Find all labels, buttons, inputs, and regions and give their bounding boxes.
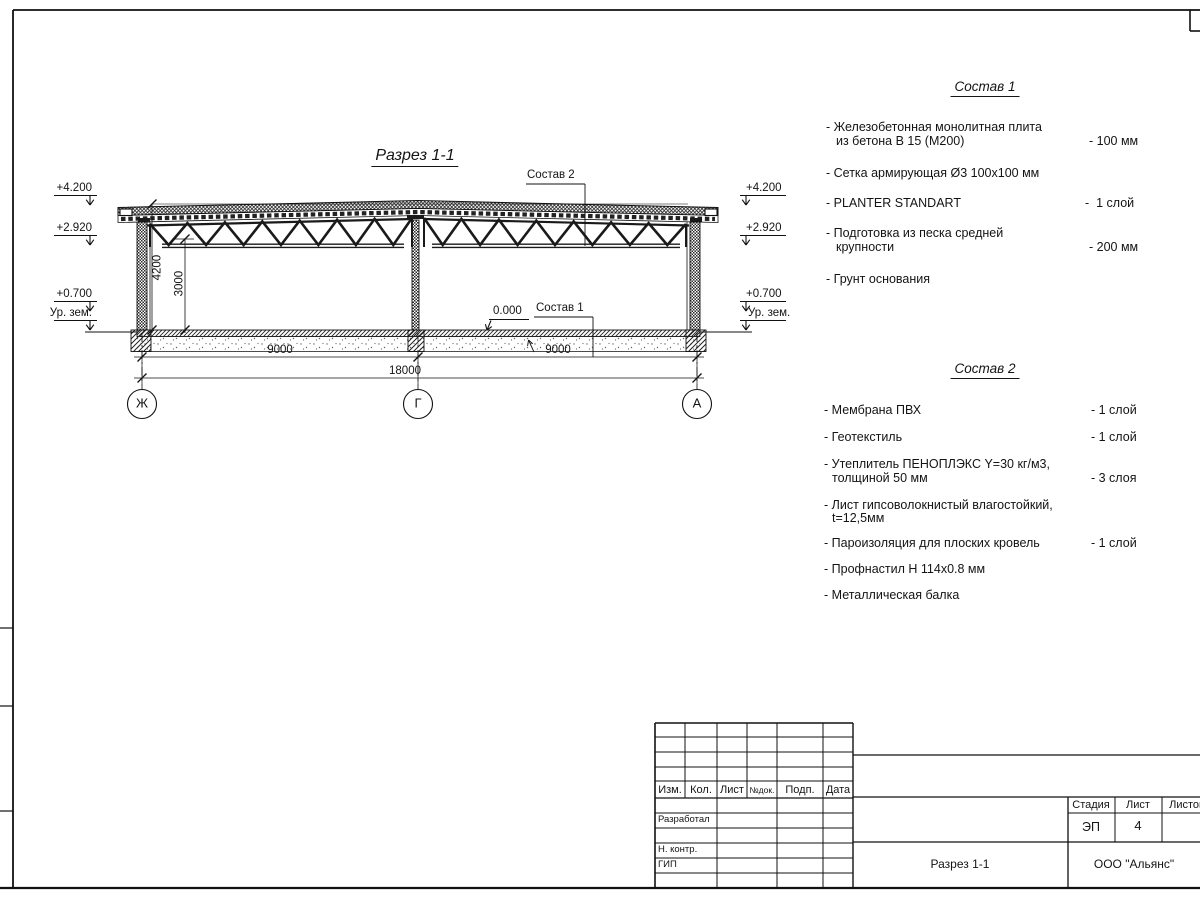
elevation-label: +2.920	[50, 222, 92, 235]
axis-letter: А	[693, 397, 702, 412]
floor-slab	[85, 330, 752, 352]
sostav2-title: Состав 2	[951, 361, 1020, 379]
list-item-value: - 1 слой	[1091, 536, 1137, 550]
list-item-value: - 1 слой	[1085, 196, 1134, 210]
zero-level-mark-icon	[485, 320, 529, 331]
walls-columns	[137, 220, 700, 330]
stage-label: Стадия	[1072, 799, 1110, 812]
sostav1-title: Состав 1	[951, 79, 1020, 97]
elevation-label: +0.700	[746, 288, 782, 301]
list-item: - Геотекстиль	[824, 430, 902, 444]
list-item-value: - 3 слоя	[1091, 471, 1136, 485]
axis-letter: Ж	[136, 397, 148, 412]
titleblock-col-podp: Подп.	[785, 784, 814, 797]
level-mark-icon	[54, 236, 97, 246]
sheet-label: Лист	[1126, 799, 1150, 812]
axis-letter: Г	[414, 397, 421, 412]
dimension-label: 9000	[545, 344, 571, 357]
zero-level-label: 0.000	[493, 305, 522, 318]
level-mark-icon	[54, 196, 97, 206]
titleblock-row-ncontr: Н. контр.	[658, 845, 697, 856]
list-item-value: - 1 слой	[1091, 403, 1137, 417]
titleblock-col-kol: Кол.	[690, 784, 712, 797]
titleblock-col-izm: Изм.	[658, 784, 682, 797]
list-item: - Грунт основания	[826, 272, 930, 286]
list-item: - Сетка армирующая Ø3 100х100 мм	[826, 166, 1039, 180]
list-item: - Пароизоляция для плоских кровель	[824, 536, 1040, 550]
elevation-label: +2.920	[746, 222, 782, 235]
stage-value: ЭП	[1082, 820, 1100, 834]
level-mark-icon	[54, 321, 97, 331]
list-item: - PLANTER STANDART	[826, 196, 961, 210]
drawing-linework	[0, 0, 1200, 900]
sheet-value: 4	[1134, 819, 1141, 834]
frame-corner-box	[1190, 10, 1200, 31]
section-view	[54, 184, 786, 419]
section-title: Разрез 1-1	[371, 147, 458, 167]
list-item: - Железобетонная монолитная плита	[826, 120, 1042, 134]
list-item: крупности	[836, 240, 894, 254]
list-item-value: - 100 мм	[1089, 134, 1138, 148]
titleblock-col-list: Лист	[720, 784, 744, 797]
leader-label-sostav1: Состав 1	[536, 302, 584, 315]
sheet-frame	[0, 10, 1200, 888]
titleblock-row-developed: Разработал	[658, 815, 710, 826]
list-item: t=12,5мм	[832, 511, 884, 525]
titleblock-col-data: Дата	[826, 784, 850, 797]
list-item: - Металлическая балка	[824, 588, 959, 602]
titleblock-row-gip: ГИП	[658, 860, 677, 871]
level-mark-icon	[740, 321, 786, 331]
level-mark-icon	[740, 196, 786, 206]
dimension-label: 9000	[267, 344, 293, 357]
list-item: толщиной 50 мм	[832, 471, 928, 485]
titleblock-company: ООО "Альянс"	[1094, 858, 1174, 872]
list-item: - Подготовка из песка средней	[826, 226, 1003, 240]
elevation-label: +4.200	[746, 182, 782, 195]
ground-level-label: Ур. зем.	[748, 307, 790, 320]
ground-level-label: Ур. зем.	[40, 307, 92, 320]
list-item-value: - 1 слой	[1091, 430, 1137, 444]
list-item: - Мембрана ПВХ	[824, 403, 921, 417]
elevation-label: +4.200	[50, 182, 92, 195]
dimension-label: 18000	[389, 365, 421, 378]
list-item: - Профнастил Н 114х0.8 мм	[824, 562, 985, 576]
elevation-label: +0.700	[50, 288, 92, 301]
list-item: - Утеплитель ПЕНОПЛЭКС Y=30 кг/м3,	[824, 457, 1050, 471]
leader-label-sostav2: Состав 2	[527, 169, 575, 182]
dimension-label: 3000	[173, 266, 186, 302]
titleblock-doc-name: Разрез 1-1	[931, 858, 990, 872]
list-item: из бетона В 15 (М200)	[836, 134, 964, 148]
dimension-label: 4200	[151, 250, 164, 286]
sheets-label: Листов	[1169, 799, 1200, 812]
list-item-value: - 200 мм	[1089, 240, 1138, 254]
titleblock-col-ndok: №док.	[750, 786, 775, 796]
level-mark-icon	[740, 236, 786, 246]
drawing-sheet: Разрез 1-1 +4.200 +2.920 +0.700 Ур. зем.…	[0, 0, 1200, 900]
